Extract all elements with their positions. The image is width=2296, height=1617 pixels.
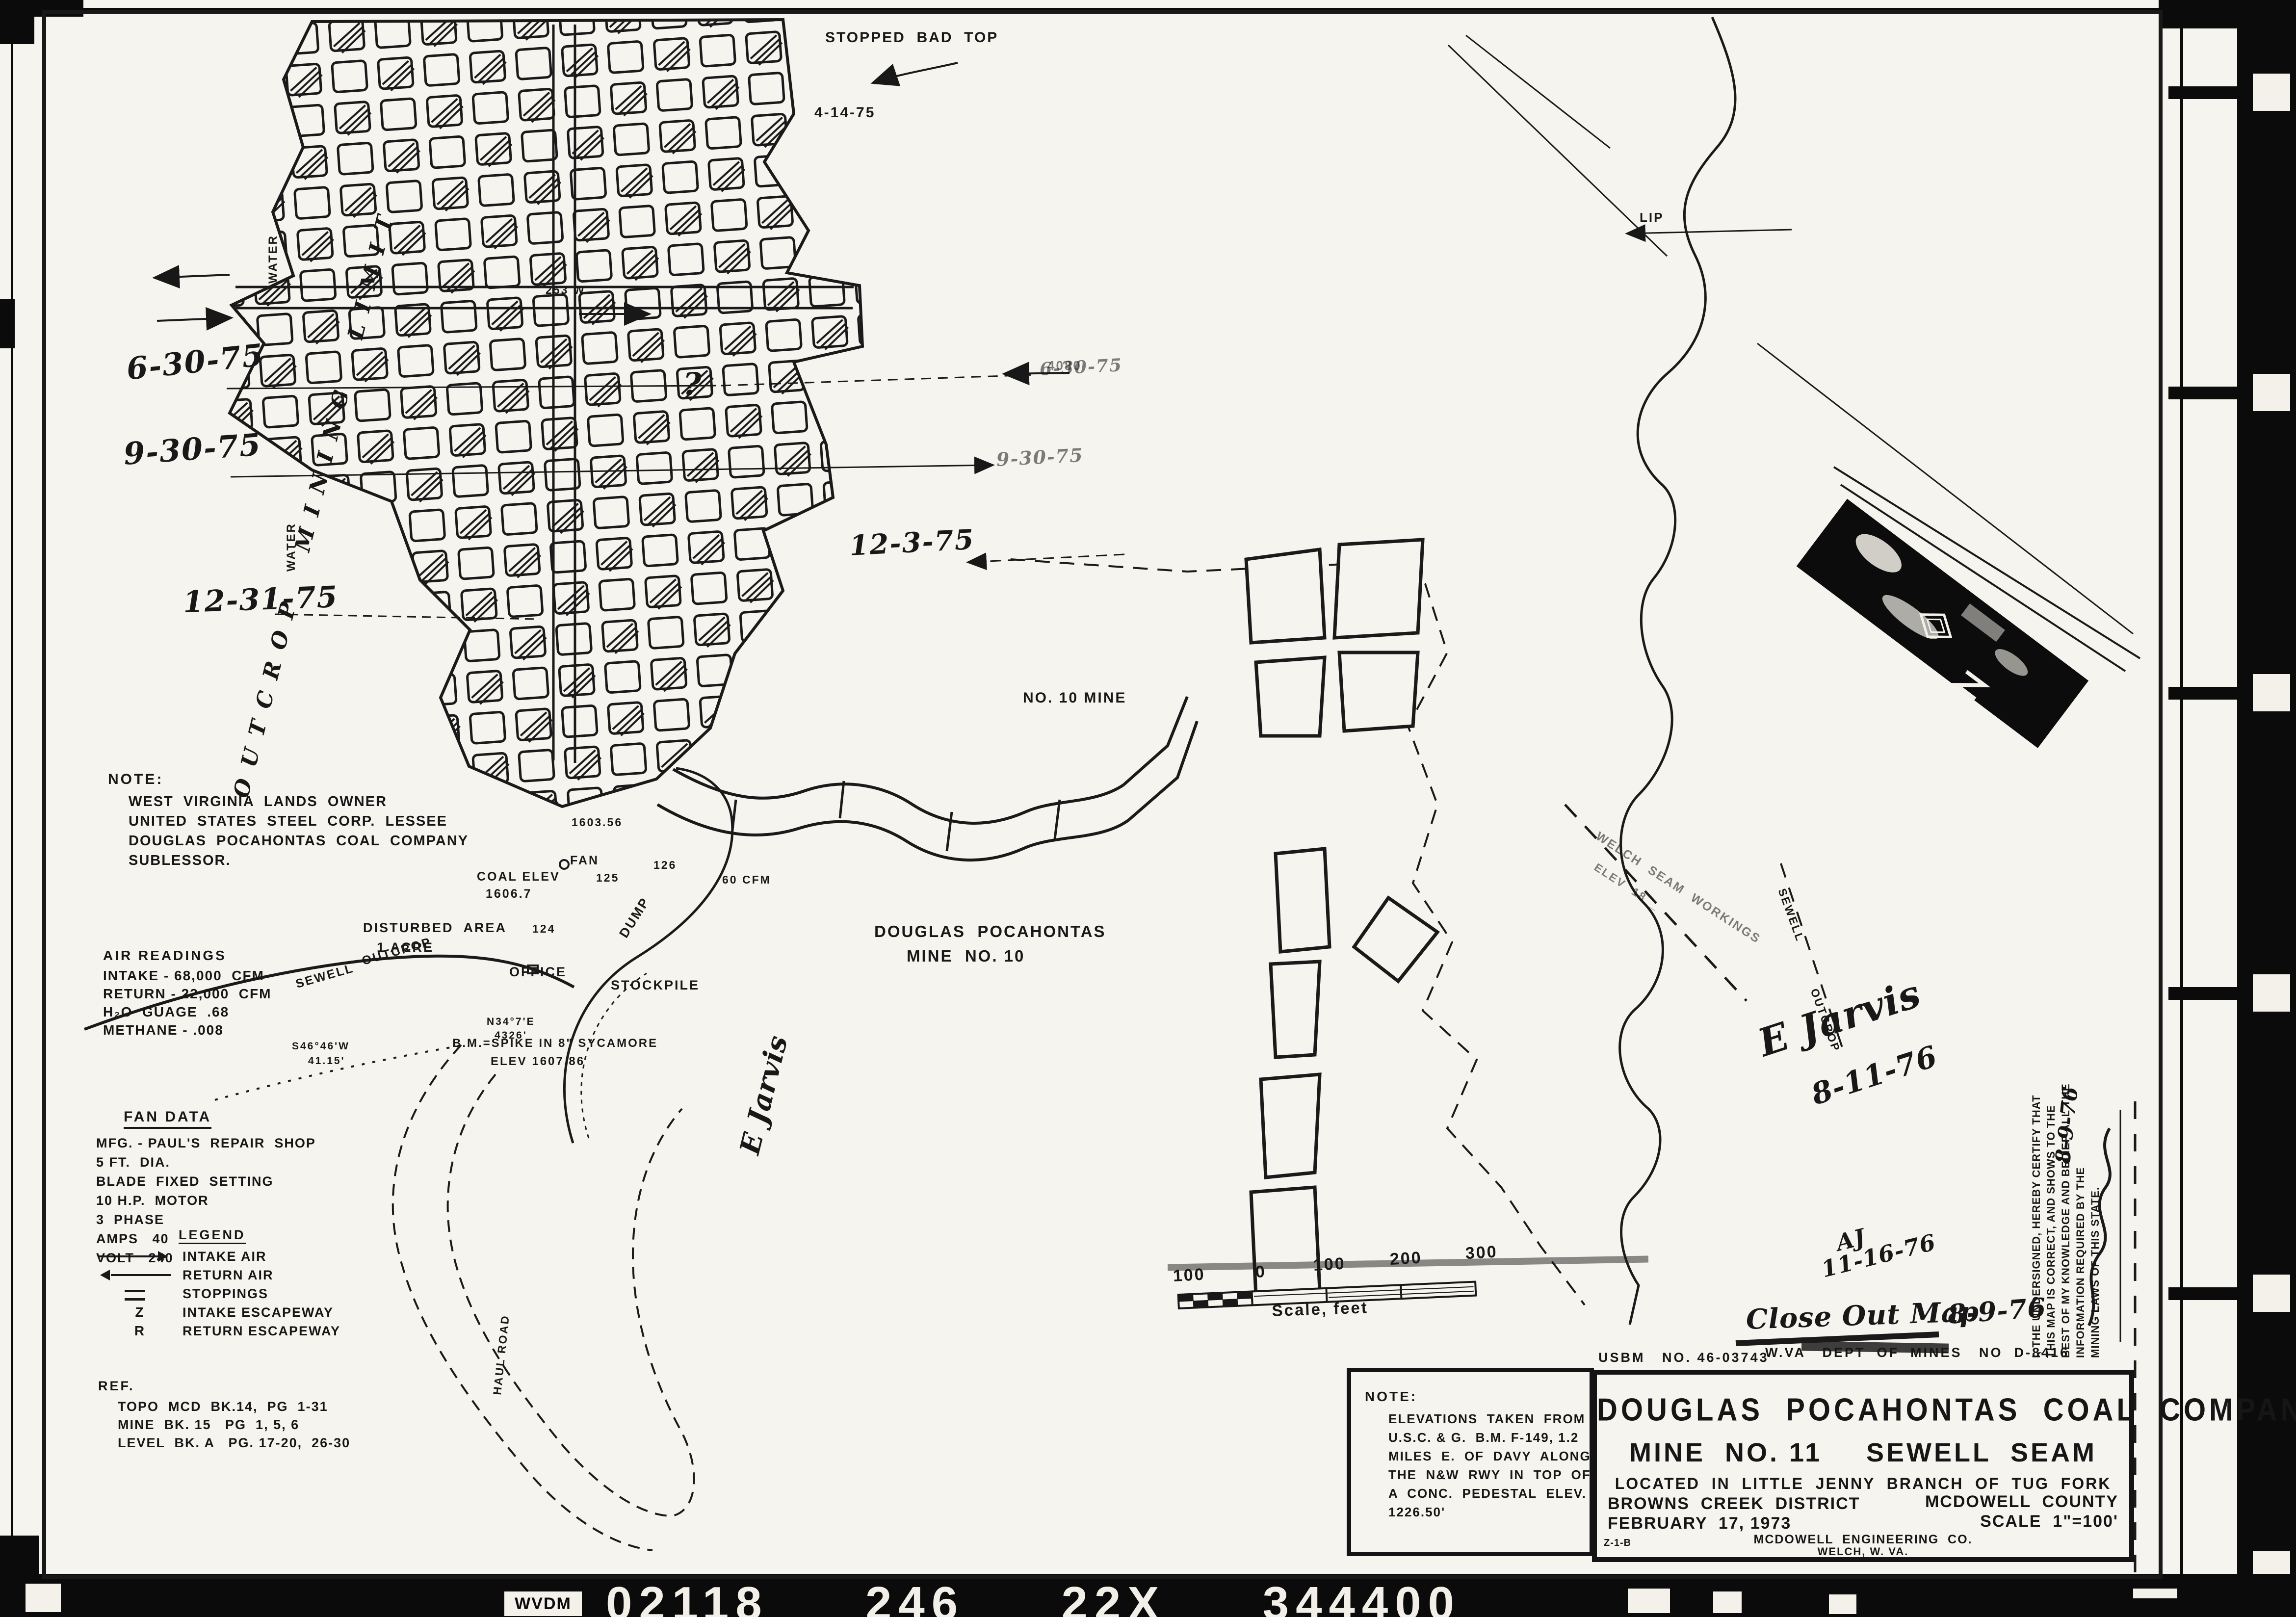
ref-lines: TOPO MCD BK.14, PG 1-31MINE BK. 15 PG 1,… bbox=[98, 1398, 350, 1452]
ref-lines-item: TOPO MCD BK.14, PG 1-31 bbox=[118, 1398, 350, 1416]
owner-note-lines-item: SUBLESSOR. bbox=[129, 851, 469, 870]
mark-question: ? bbox=[683, 369, 703, 400]
legend-item-label: RETURN AIR bbox=[183, 1268, 274, 1283]
legend-item-label: INTAKE AIR bbox=[183, 1249, 267, 1264]
scale-tick-100l: 100 bbox=[1173, 1266, 1205, 1284]
film-strip-right bbox=[2237, 0, 2296, 1617]
note-box-lines-item: ELEVATIONS TAKEN FROM bbox=[1388, 1409, 1591, 1428]
note-box-lines-item: 1226.50' bbox=[1388, 1503, 1591, 1521]
sprocket-hole bbox=[2253, 74, 2290, 111]
label-4080: 4080 bbox=[1047, 359, 1082, 372]
elevation-note-box: NOTE: ELEVATIONS TAKEN FROMU.S.C. & G. B… bbox=[1347, 1368, 1594, 1556]
label-bm-spike: B.M.=SPIKE IN 8" SYCAMORE bbox=[452, 1038, 658, 1049]
wva-mines-number: W.VA DEPT OF MINES NO D-8416 bbox=[1765, 1345, 2069, 1360]
legend-item-label: RETURN ESCAPEWAY bbox=[183, 1324, 340, 1339]
legend: LEGEND INTAKE AIRRETURN AIRSTOPPINGSZINT… bbox=[96, 1227, 340, 1340]
label-124: 124 bbox=[532, 923, 555, 935]
legend-item: RRETURN ESCAPEWAY bbox=[96, 1322, 340, 1340]
film-tick bbox=[2168, 1287, 2237, 1300]
title-county: MCDOWELL COUNTY bbox=[1925, 1492, 2118, 1512]
air-readings-lines-item: H₂O GUAGE .68 bbox=[103, 1003, 271, 1021]
note-box-lines: ELEVATIONS TAKEN FROMU.S.C. & G. B.M. F-… bbox=[1388, 1409, 1591, 1521]
fan-data-lines-item: MFG. - PAUL'S REPAIR SHOP bbox=[96, 1134, 316, 1153]
title-located: LOCATED IN LITTLE JENNY BRANCH OF TUG FO… bbox=[1597, 1475, 2129, 1493]
legend-rows: INTAKE AIRRETURN AIRSTOPPINGSZINTAKE ESC… bbox=[96, 1247, 340, 1340]
label-bearing-1-len: 4326' bbox=[495, 1030, 527, 1041]
date-12-3-75: 12-3-75 bbox=[849, 526, 975, 560]
title-company: DOUGLAS POCAHONTAS COAL COMPANY bbox=[1597, 1391, 2129, 1428]
title-scale: SCALE 1"=100' bbox=[1980, 1512, 2118, 1531]
date-9-30-75-b: 9-30-75 bbox=[996, 446, 1084, 469]
film-edge-right-inner bbox=[2180, 20, 2183, 1580]
ref-heading: REF. bbox=[98, 1379, 350, 1394]
film-hole-bottomleft bbox=[26, 1584, 61, 1612]
fan-data-lines-item: 3 PHASE bbox=[96, 1210, 316, 1229]
legend-item: INTAKE AIR bbox=[96, 1247, 340, 1266]
usbm-number: USBM NO. 46-03743 bbox=[1598, 1350, 1769, 1365]
title-firm: MCDOWELL ENGINEERING CO. bbox=[1597, 1533, 2129, 1547]
arrow-right-symbol bbox=[96, 1249, 183, 1264]
owner-note-lines: WEST VIRGINIA LANDS OWNERUNITED STATES S… bbox=[108, 792, 469, 870]
air-readings-heading: AIR READINGS bbox=[103, 948, 271, 964]
air-readings-lines-item: RETURN - 22,000 CFM bbox=[103, 985, 271, 1003]
label-water-lower: WATER bbox=[286, 522, 297, 572]
legend-heading: LEGEND bbox=[179, 1227, 246, 1244]
ref-lines-item: LEVEL BK. A PG. 17-20, 26-30 bbox=[118, 1434, 350, 1452]
title-district: BROWNS CREEK DISTRICT bbox=[1608, 1494, 1860, 1513]
owner-note: NOTE: WEST VIRGINIA LANDS OWNERUNITED ST… bbox=[108, 771, 469, 870]
date-8-9-76: 8-9-76 bbox=[1947, 1294, 2047, 1328]
title-block: DOUGLAS POCAHONTAS COAL COMPANY MINE NO.… bbox=[1592, 1370, 2134, 1562]
film-tick bbox=[2168, 987, 2237, 1000]
owner-note-lines-item: WEST VIRGINIA LANDS OWNER bbox=[129, 792, 469, 811]
ref-block: REF. TOPO MCD BK.14, PG 1-31MINE BK. 15 … bbox=[98, 1379, 350, 1452]
legend-item: STOPPINGS bbox=[96, 1284, 340, 1303]
fan-data-lines-item: BLADE FIXED SETTING bbox=[96, 1172, 316, 1191]
title-seam: SEWELL SEAM bbox=[1866, 1437, 2097, 1468]
date-9-30-75: 9-30-75 bbox=[123, 429, 262, 469]
note-box-lines-item: A CONC. PEDESTAL ELEV. bbox=[1388, 1484, 1591, 1503]
ref-lines-item: MINE BK. 15 PG 1, 5, 6 bbox=[118, 1416, 350, 1434]
fan-data-lines-item: 10 H.P. MOTOR bbox=[96, 1191, 316, 1210]
film-tick bbox=[2168, 86, 2237, 99]
air-readings-lines-item: METHANE - .008 bbox=[103, 1021, 271, 1039]
sprocket-hole bbox=[2253, 974, 2290, 1012]
fan-data-lines-item: 5 FT. DIA. bbox=[96, 1153, 316, 1172]
title-mine: MINE NO. 11 bbox=[1629, 1437, 1822, 1468]
letter-symbol: Z bbox=[96, 1304, 183, 1320]
film-mark-left-1 bbox=[0, 299, 15, 348]
label-bearing-1: N34°7'E bbox=[487, 1017, 535, 1027]
note-box-lines-item: THE N&W RWY IN TOP OF bbox=[1388, 1465, 1591, 1484]
scale-tick-200: 200 bbox=[1389, 1250, 1422, 1268]
legend-item-label: STOPPINGS bbox=[183, 1286, 268, 1302]
title-date: FEBRUARY 17, 1973 bbox=[1608, 1514, 1791, 1533]
scale-caption: Scale, feet bbox=[1272, 1299, 1368, 1319]
legend-item: ZINTAKE ESCAPEWAY bbox=[96, 1303, 340, 1322]
label-fan: FAN bbox=[570, 855, 599, 867]
label-253w: 253 W bbox=[546, 285, 585, 296]
film-corner-topleft bbox=[0, 0, 34, 44]
label-bearing-2-len: 41.15' bbox=[308, 1056, 345, 1066]
film-blotch bbox=[1829, 1594, 1856, 1614]
title-firm-city: WELCH, W. VA. bbox=[1597, 1545, 2129, 1558]
film-tick bbox=[2168, 387, 2237, 399]
stopping-symbol bbox=[96, 1286, 183, 1302]
label-lip: LIP bbox=[1640, 211, 1664, 224]
scale-tick-300: 300 bbox=[1465, 1244, 1498, 1262]
label-126: 126 bbox=[653, 860, 677, 871]
label-water-upper: WATER bbox=[267, 235, 279, 284]
air-readings-lines: INTAKE - 68,000 CFMRETURN - 22,000 CFMH₂… bbox=[103, 966, 271, 1039]
label-bm-elev: ELEV 1607.86 bbox=[491, 1056, 585, 1068]
label-office: OFFICE bbox=[509, 965, 567, 979]
scanned-mine-map: WVDM 02118 246 22X 344400 NOTE: WEST VIR… bbox=[0, 0, 2296, 1617]
letter-symbol: R bbox=[96, 1323, 183, 1339]
label-60-cfm: 60 CFM bbox=[722, 874, 771, 886]
label-no10-mine: NO. 10 MINE bbox=[1023, 691, 1126, 705]
film-blotch bbox=[2133, 1589, 2177, 1598]
wvdm-stamp: WVDM bbox=[504, 1591, 582, 1616]
scale-tick-0: 0 bbox=[1255, 1263, 1267, 1280]
arrow-left-symbol bbox=[96, 1267, 183, 1283]
label-1603-56: 1603.56 bbox=[572, 817, 623, 828]
label-stopped-bad-top: STOPPED BAD TOP bbox=[825, 30, 998, 45]
film-tick bbox=[2168, 687, 2237, 700]
owner-note-lines-item: DOUGLAS POCAHONTAS COAL COMPANY bbox=[129, 831, 469, 851]
sprocket-hole bbox=[2253, 1275, 2290, 1312]
sprocket-hole bbox=[2253, 674, 2290, 711]
legend-item: RETURN AIR bbox=[96, 1266, 340, 1284]
label-mine-no10: MINE NO. 10 bbox=[907, 948, 1025, 964]
air-readings: AIR READINGS INTAKE - 68,000 CFMRETURN -… bbox=[103, 948, 271, 1039]
film-edge-left bbox=[11, 0, 13, 1617]
note-box-lines-item: MILES E. OF DAVY ALONG bbox=[1388, 1447, 1591, 1465]
film-frame-code: 02118 246 22X 344400 bbox=[606, 1577, 1461, 1617]
date-12-31-75: 12-31-75 bbox=[183, 582, 339, 617]
scale-tick-100r: 100 bbox=[1313, 1255, 1346, 1274]
owner-note-heading: NOTE: bbox=[108, 771, 469, 788]
wvdm-label: WVDM bbox=[515, 1594, 572, 1614]
owner-note-lines-item: UNITED STATES STEEL CORP. LESSEE bbox=[129, 811, 469, 831]
label-bearing-2: S46°46'W bbox=[292, 1041, 350, 1051]
date-4-14-75: 4-14-75 bbox=[814, 105, 875, 120]
label-stockpile: STOCKPILE bbox=[611, 979, 700, 992]
fan-data-heading: FAN DATA bbox=[124, 1109, 211, 1129]
legend-item-label: INTAKE ESCAPEWAY bbox=[183, 1305, 334, 1320]
title-sheet-number: Z-1-B bbox=[1604, 1538, 1631, 1549]
certification-lines-item: MINING LAWS OF THIS STATE. bbox=[2088, 1085, 2103, 1358]
sprocket-hole bbox=[2253, 374, 2290, 411]
note-box-heading: NOTE: bbox=[1365, 1389, 1417, 1405]
film-blotch bbox=[1713, 1591, 1742, 1613]
label-coal-elev-val: 1606.7 bbox=[486, 888, 532, 900]
label-coal-elev: COAL ELEV bbox=[477, 871, 560, 883]
label-disturbed-area: DISTURBED AREA bbox=[363, 921, 507, 935]
label-douglas-pocahontas: DOUGLAS POCAHONTAS bbox=[874, 923, 1106, 939]
note-box-lines-item: U.S.C. & G. B.M. F-149, 1.2 bbox=[1388, 1428, 1591, 1447]
film-blotch bbox=[1628, 1589, 1670, 1613]
air-readings-lines-item: INTAKE - 68,000 CFM bbox=[103, 966, 271, 985]
label-125: 125 bbox=[596, 872, 619, 884]
note-close-out-map: Close Out Map bbox=[1746, 1298, 1980, 1333]
